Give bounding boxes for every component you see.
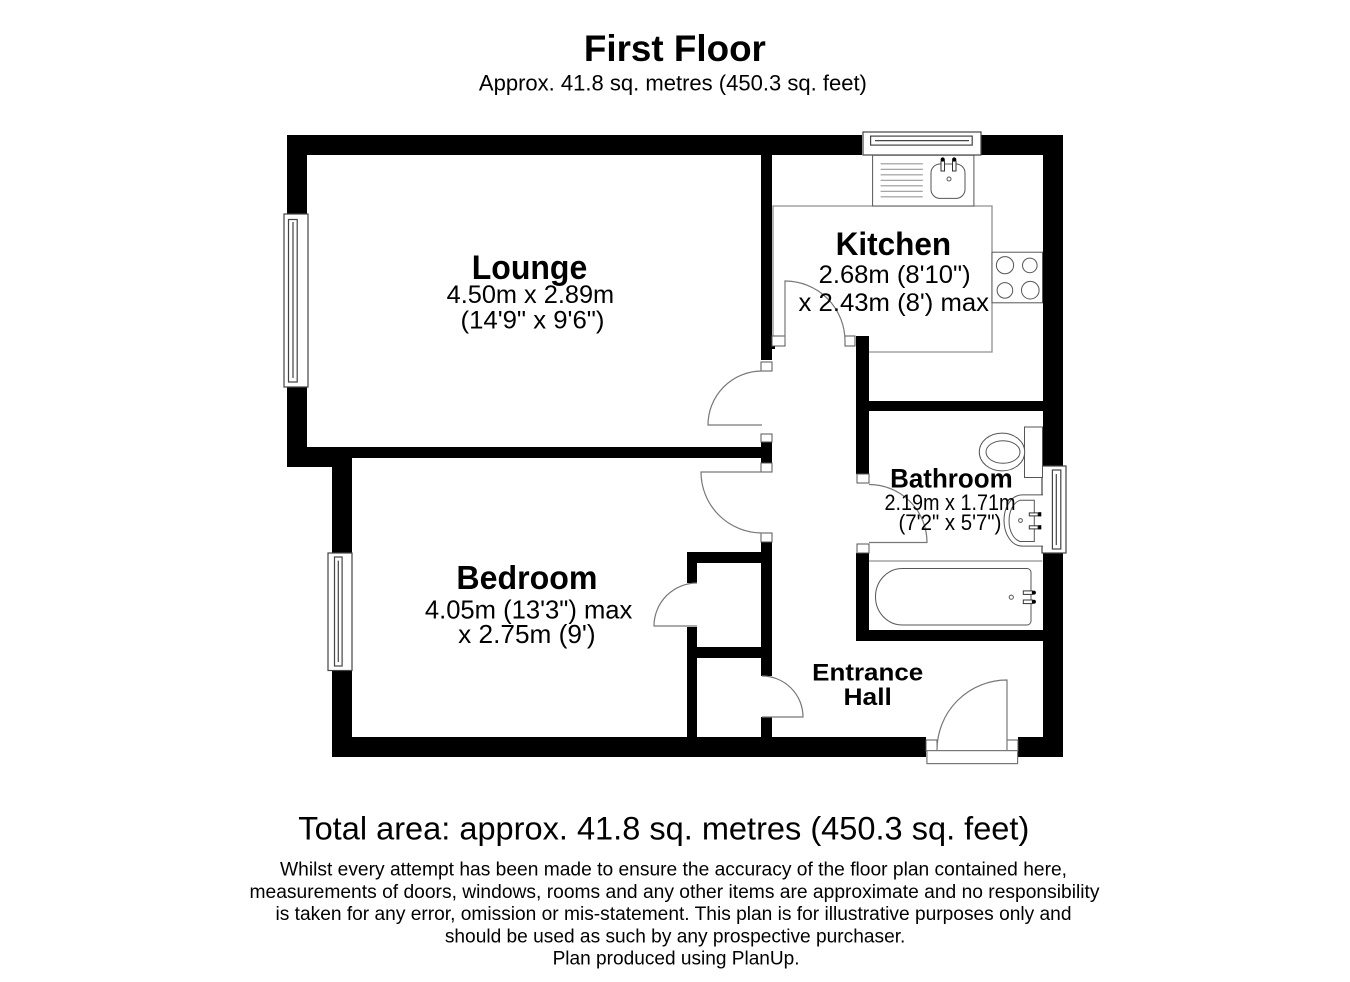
svg-text:Bathroom: Bathroom (890, 463, 1013, 493)
svg-text:Bedroom: Bedroom (456, 559, 597, 596)
svg-text:measurements of doors, windows: measurements of doors, windows, rooms an… (250, 882, 1100, 903)
svg-text:(14'9" x 9'6"): (14'9" x 9'6") (461, 306, 605, 334)
svg-text:Kitchen: Kitchen (836, 226, 952, 262)
svg-text:Entrance: Entrance (812, 659, 923, 686)
svg-text:(7'2" x 5'7"): (7'2" x 5'7") (899, 510, 1002, 535)
svg-text:Hall: Hall (844, 684, 892, 711)
svg-text:Plan produced using PlanUp.: Plan produced using PlanUp. (553, 949, 800, 970)
svg-text:x 2.75m (9'): x 2.75m (9') (458, 619, 596, 649)
svg-text:is taken for any error, omissi: is taken for any error, omission or mis-… (276, 904, 1072, 925)
svg-text:First Floor: First Floor (584, 27, 766, 69)
svg-text:4.50m x 2.89m: 4.50m x 2.89m (447, 281, 615, 309)
svg-text:Total area: approx. 41.8 sq. m: Total area: approx. 41.8 sq. metres (450… (298, 810, 1029, 846)
svg-text:Approx. 41.8 sq. metres (450.3: Approx. 41.8 sq. metres (450.3 sq. feet) (479, 71, 867, 96)
svg-text:x 2.43m (8') max: x 2.43m (8') max (799, 289, 990, 317)
svg-text:2.68m (8'10"): 2.68m (8'10") (819, 261, 971, 289)
svg-text:Whilst every attempt has been: Whilst every attempt has been made to en… (280, 860, 1067, 881)
svg-text:should be used as such by any: should be used as such by any prospectiv… (445, 926, 906, 947)
